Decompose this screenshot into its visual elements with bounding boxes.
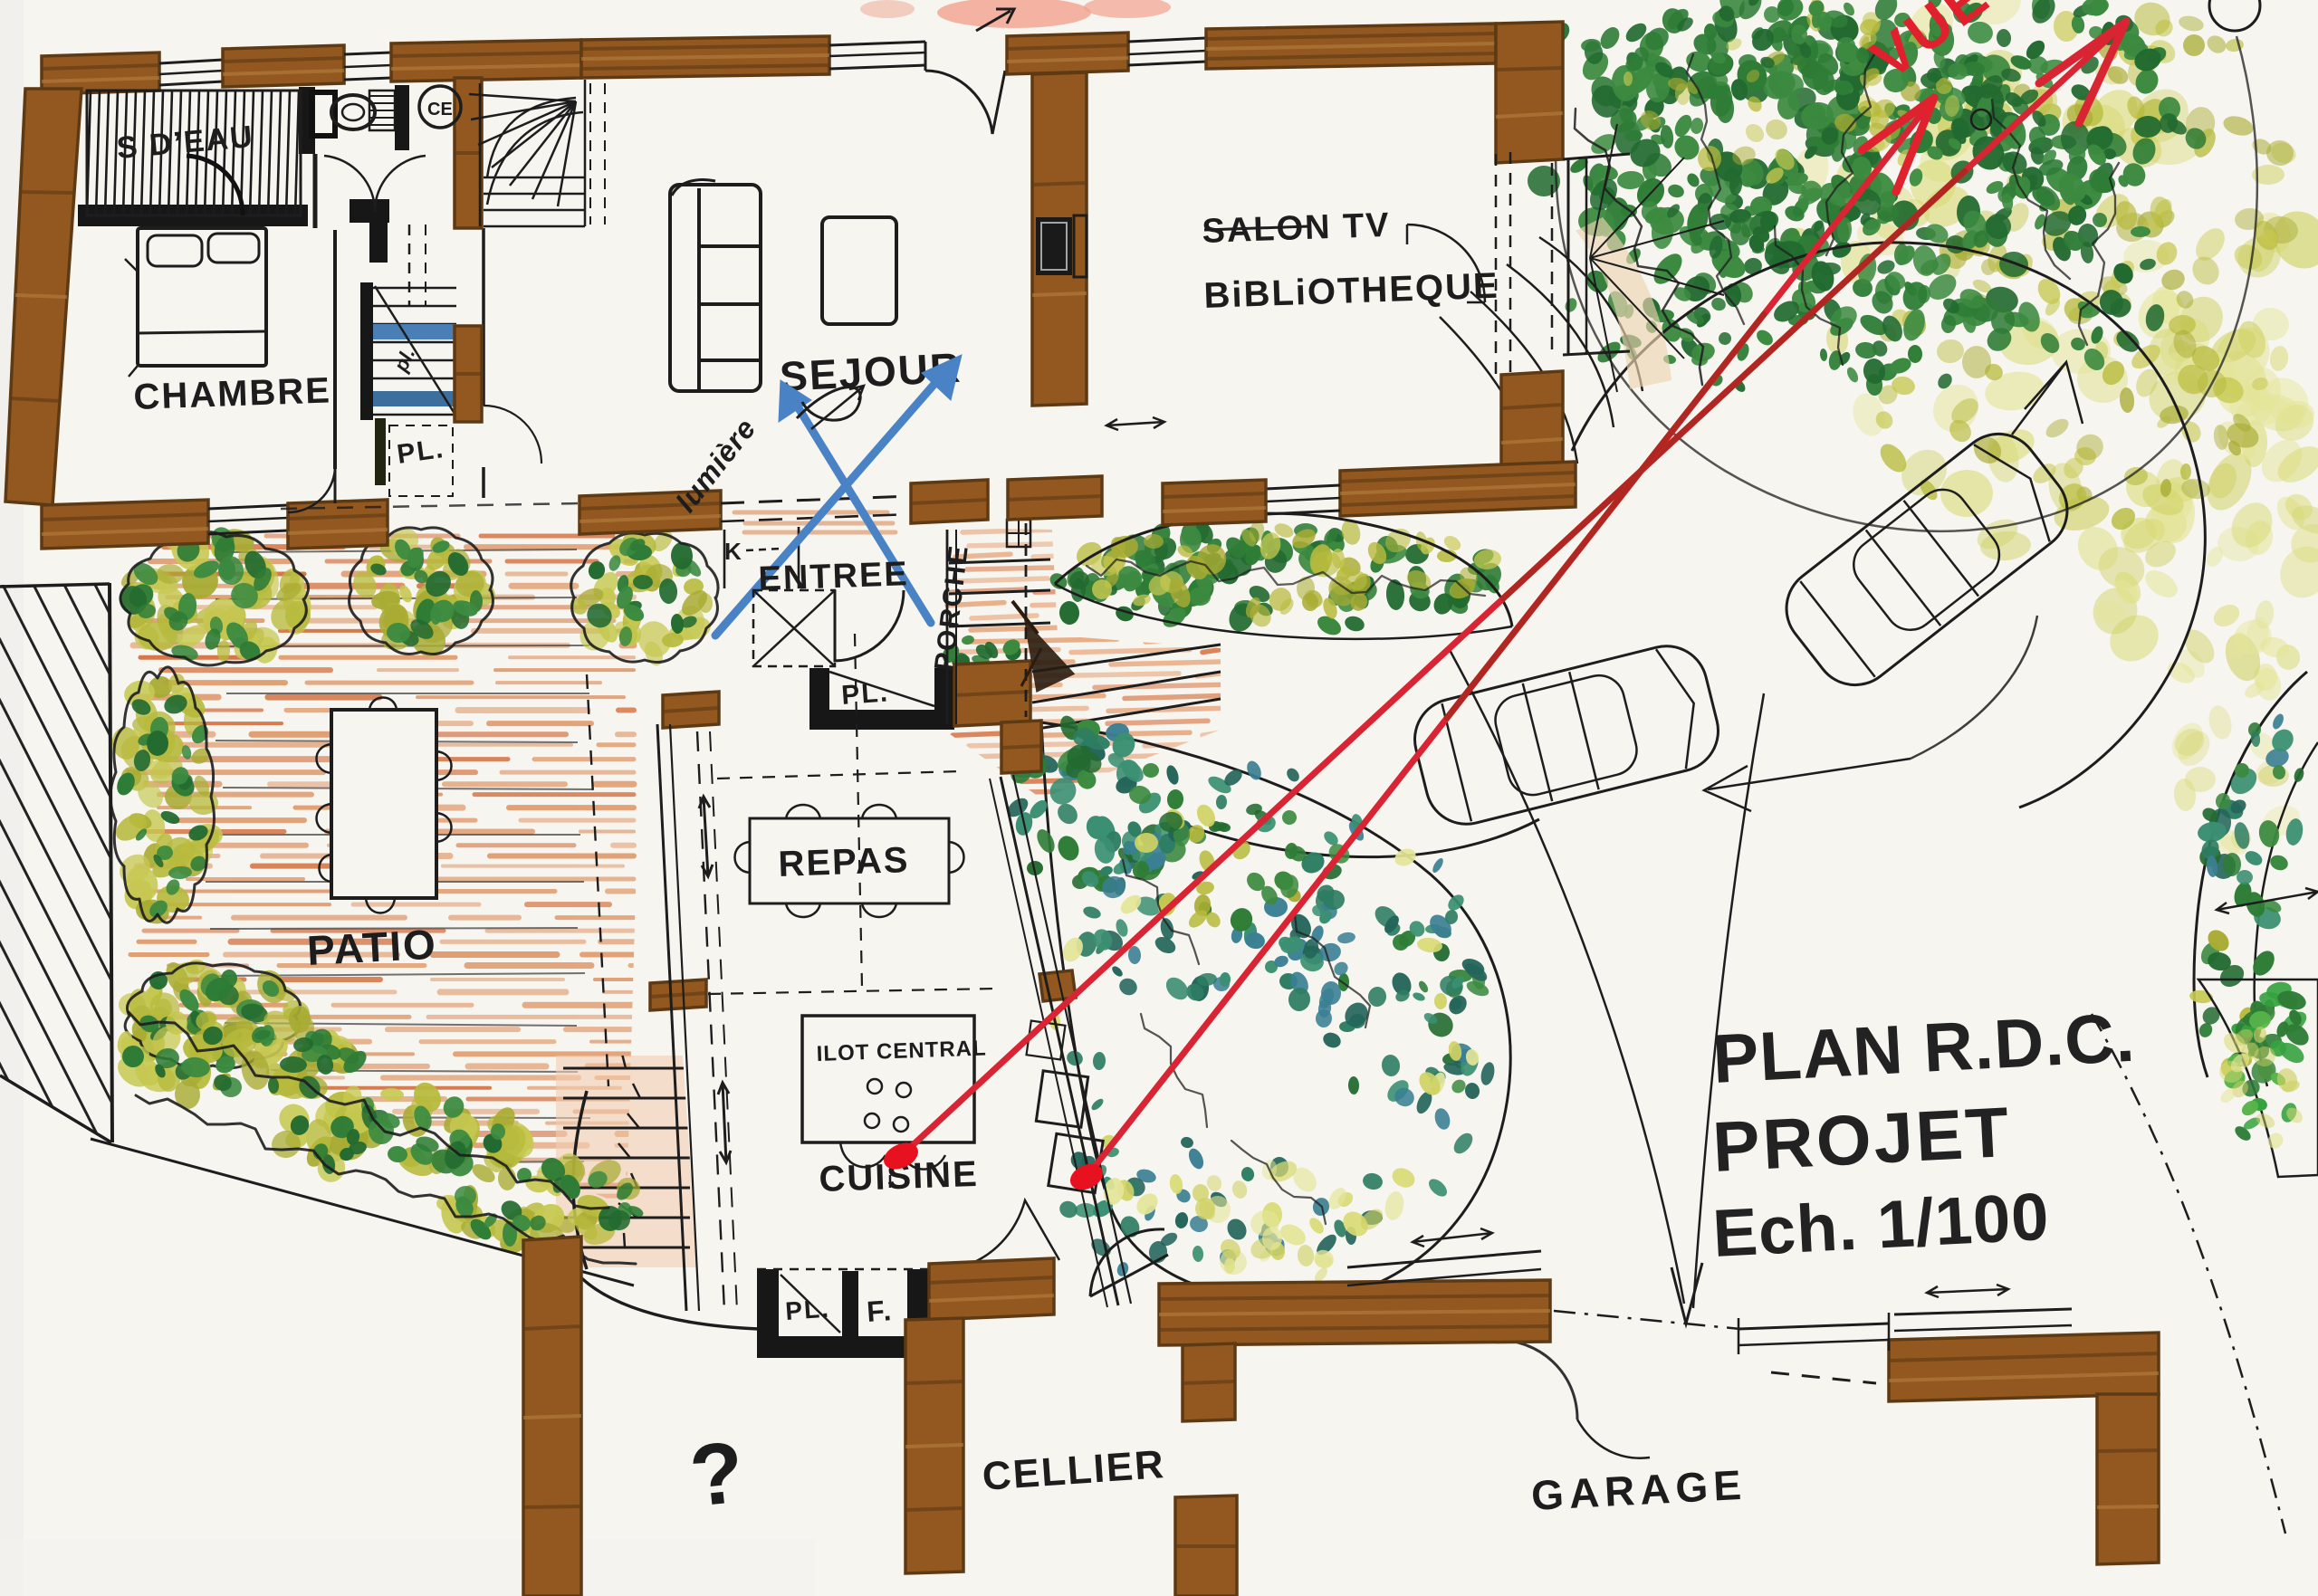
svg-text:REPAS: REPAS: [778, 840, 910, 884]
svg-text:CHAMBRE: CHAMBRE: [133, 370, 332, 417]
svg-text:K: K: [724, 538, 743, 565]
svg-text:ENTREE: ENTREE: [758, 555, 910, 598]
svg-text:?: ?: [685, 1423, 750, 1525]
svg-text:PL.: PL.: [784, 1295, 831, 1325]
svg-text:F.: F.: [866, 1294, 894, 1328]
svg-text:CE: CE: [427, 100, 453, 119]
svg-text:PROJET: PROJET: [1710, 1092, 2013, 1187]
svg-text:PATIO: PATIO: [306, 921, 438, 974]
svg-text:PL.: PL.: [840, 677, 890, 711]
